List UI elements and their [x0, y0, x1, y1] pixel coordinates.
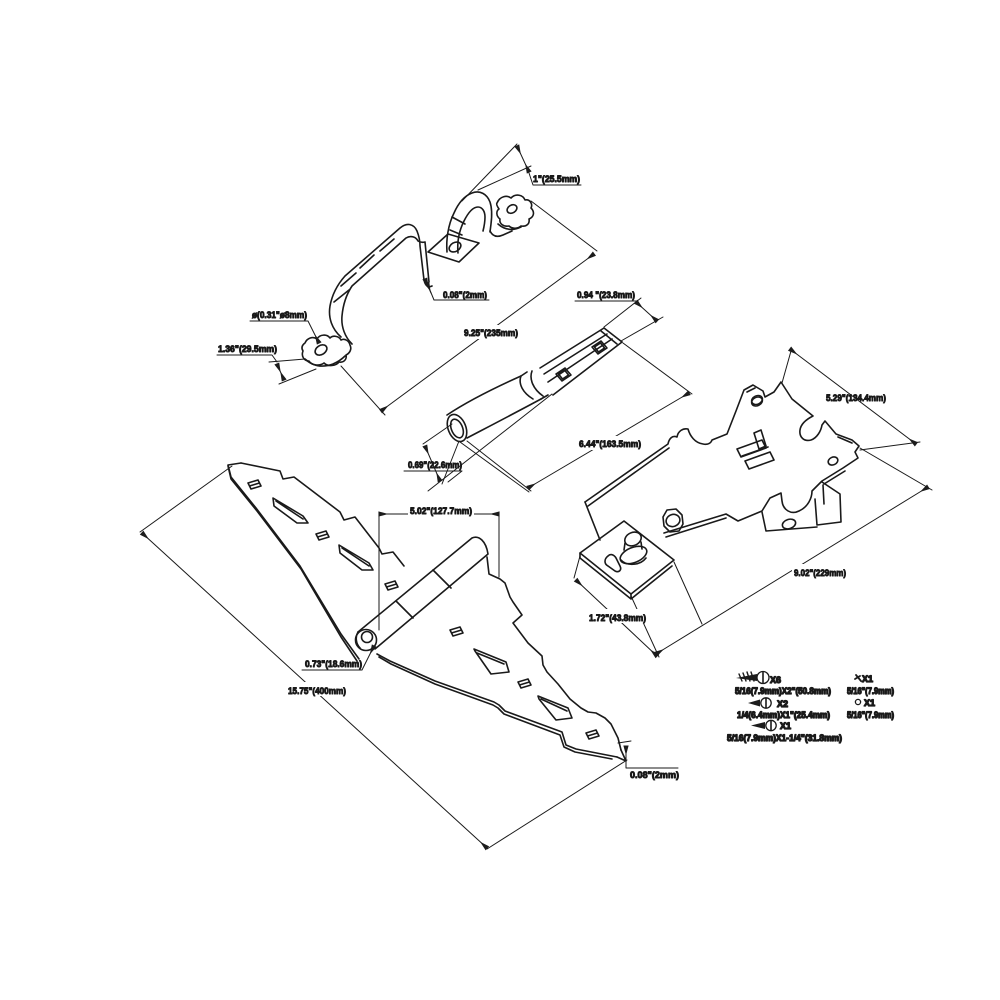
svg-text:6.44"(163.5mm): 6.44"(163.5mm): [579, 439, 641, 450]
svg-text:9.02"(229mm): 9.02"(229mm): [794, 568, 846, 579]
svg-text:5/16"(7.9mm): 5/16"(7.9mm): [847, 710, 894, 720]
svg-text:1/4(6.4mm)X1"(25.4mm): 1/4(6.4mm)X1"(25.4mm): [737, 710, 830, 720]
svg-text:15.75"(400mm): 15.75"(400mm): [288, 686, 346, 697]
svg-text:0.73"(18.6mm): 0.73"(18.6mm): [305, 659, 362, 670]
svg-text:X1: X1: [780, 721, 791, 731]
svg-text:ø(0.31"ø8mm): ø(0.31"ø8mm): [252, 310, 307, 321]
svg-text:5/16(7.9mm)X2"(50.8mm): 5/16(7.9mm)X2"(50.8mm): [735, 686, 831, 696]
svg-text:0.08"(2mm): 0.08"(2mm): [630, 770, 679, 781]
svg-text:0.08"(2mm): 0.08"(2mm): [443, 290, 487, 301]
svg-text:5/16"(7.9mm): 5/16"(7.9mm): [847, 686, 894, 696]
svg-text:X2: X2: [777, 699, 788, 709]
svg-text:5/16(7.9mm)X1-1/4"(31.8mm): 5/16(7.9mm)X1-1/4"(31.8mm): [727, 733, 842, 743]
svg-text:5.29"(134.4mm): 5.29"(134.4mm): [826, 393, 886, 404]
svg-text:1.72"(43.8mm): 1.72"(43.8mm): [589, 613, 646, 624]
svg-text:X1: X1: [862, 674, 873, 684]
svg-text:5.02"(127.7mm): 5.02"(127.7mm): [410, 506, 472, 517]
svg-text:1.36"(29.5mm): 1.36"(29.5mm): [218, 344, 277, 355]
svg-text:X1: X1: [864, 698, 875, 708]
svg-text:1"(25.5mm): 1"(25.5mm): [533, 174, 580, 185]
svg-text:9.25"(235mm): 9.25"(235mm): [464, 328, 518, 339]
svg-text:X6: X6: [770, 675, 781, 685]
svg-text:0.94 "(23.8mm): 0.94 "(23.8mm): [577, 290, 635, 301]
